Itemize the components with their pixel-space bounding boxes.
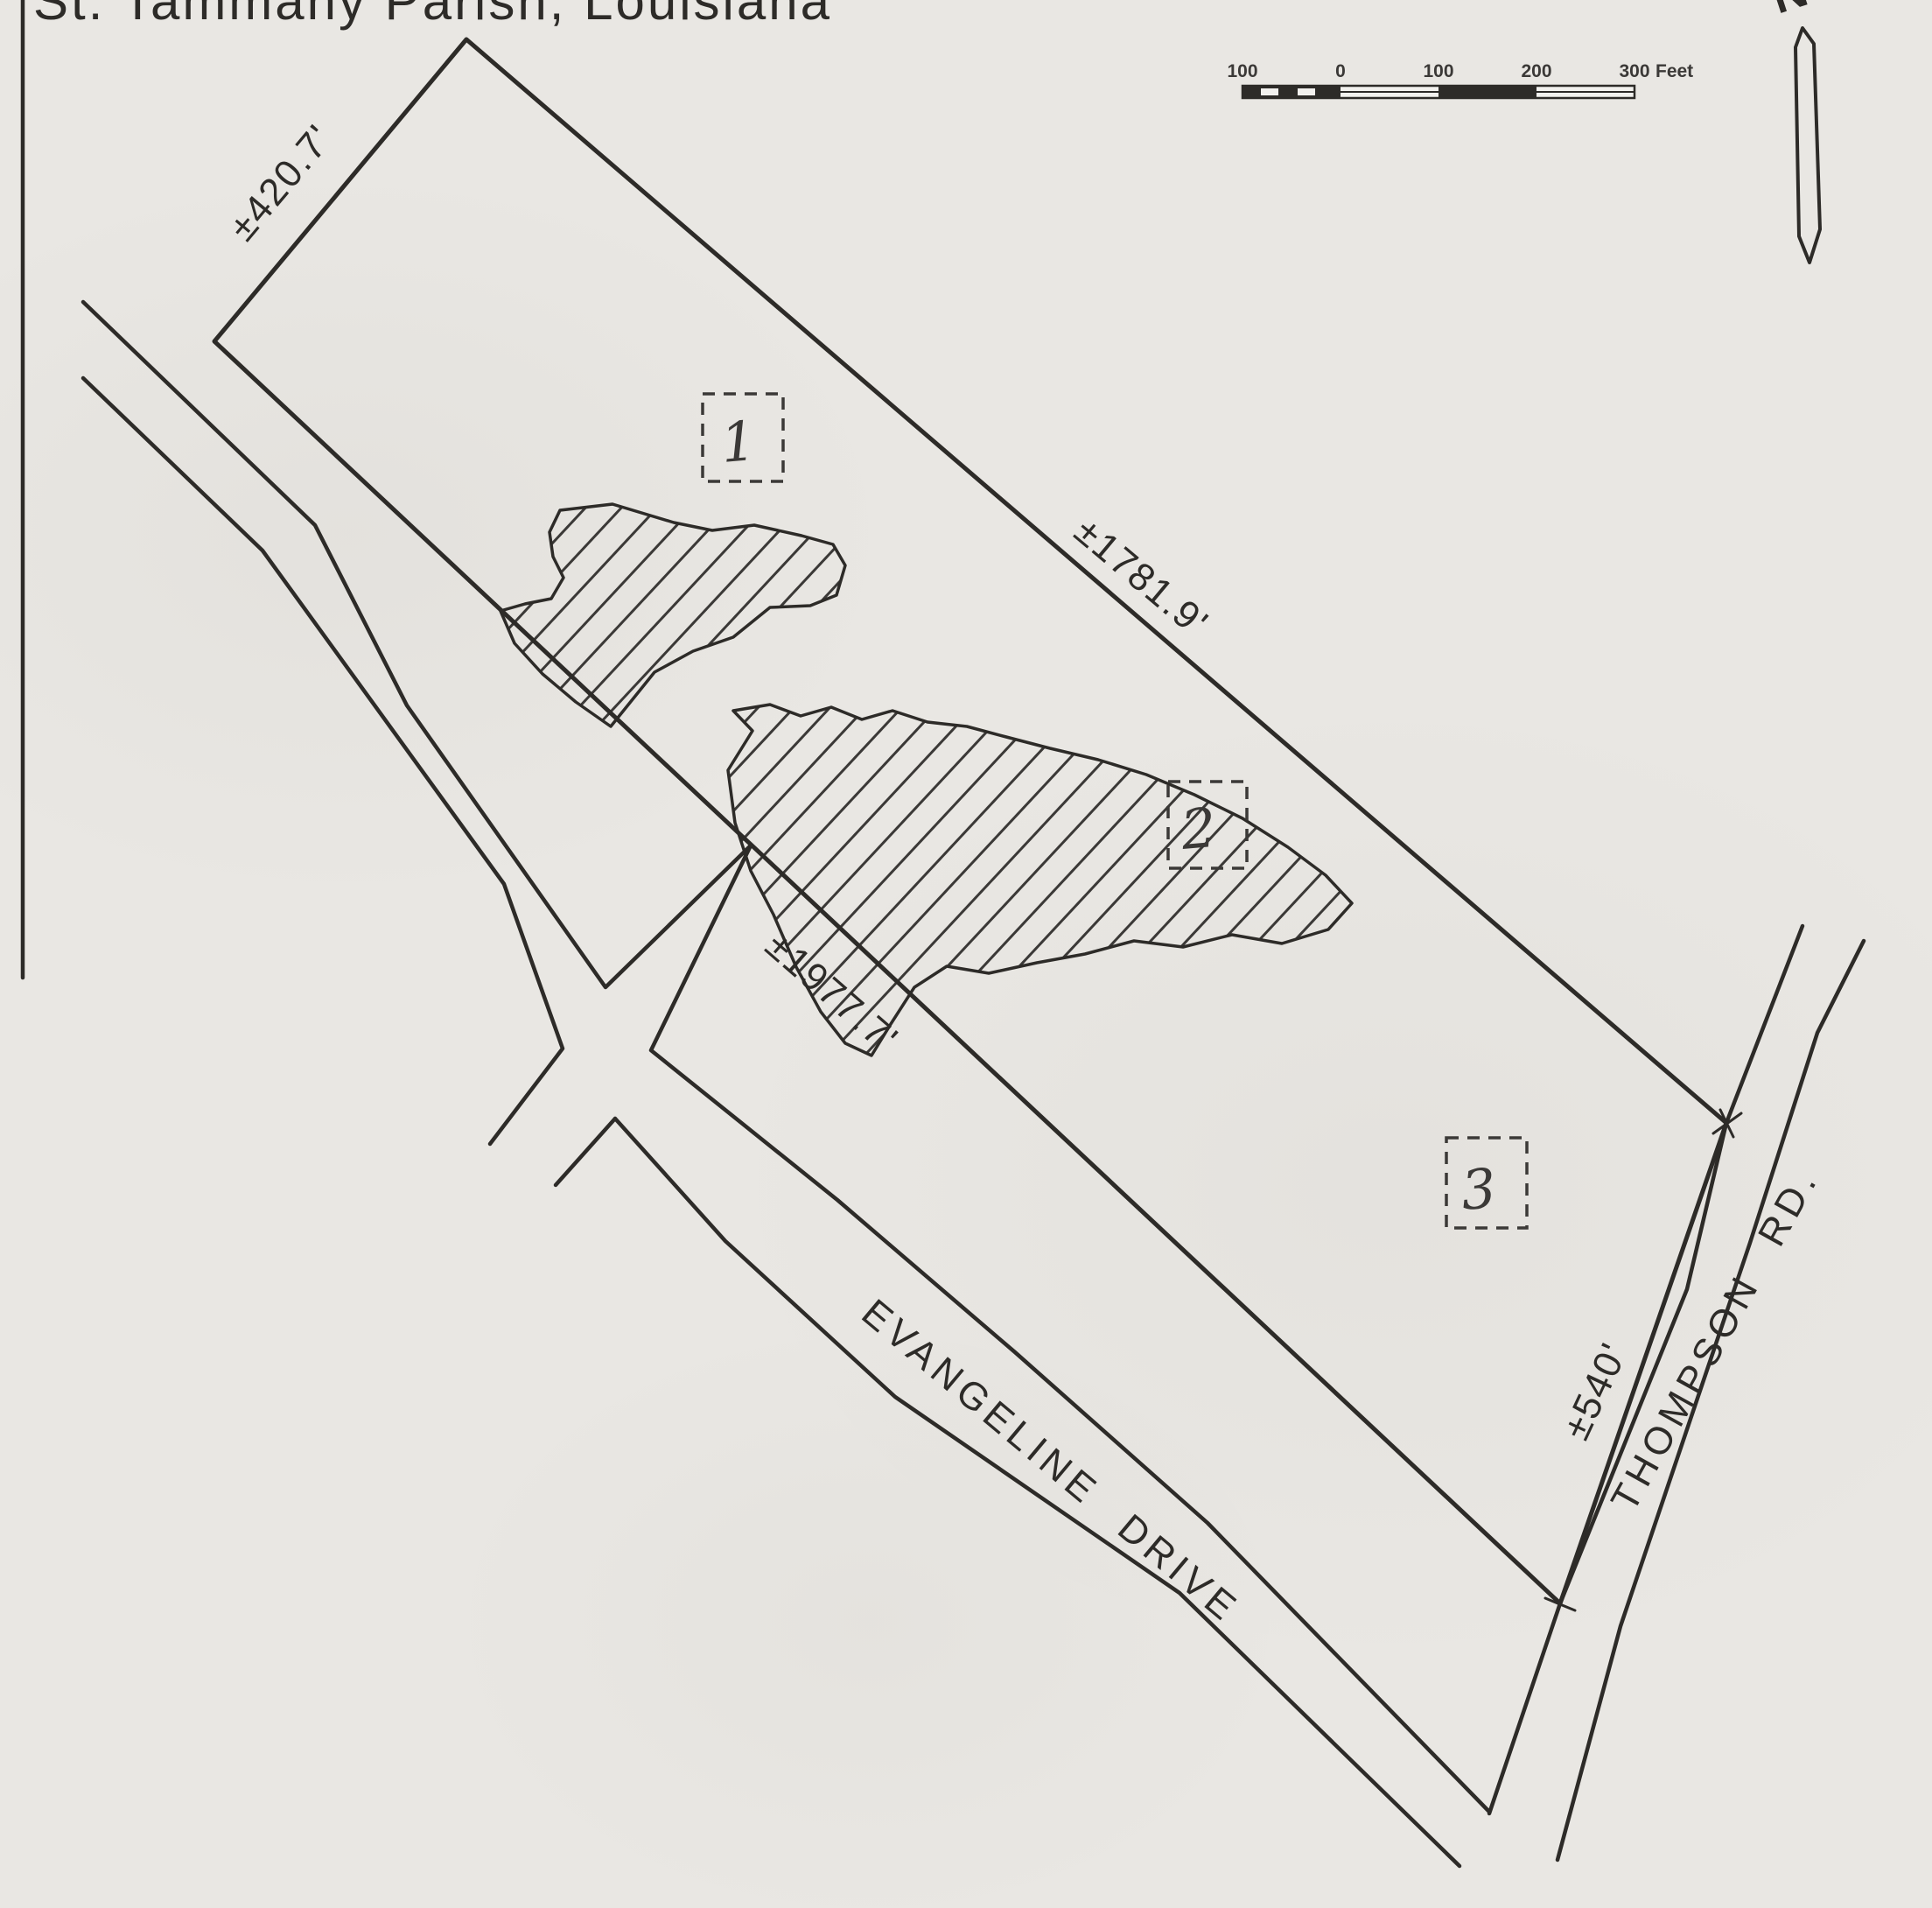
wetland-area-upper [500, 504, 845, 726]
evangeline-drive-label: EVANGELINE DRIVE [854, 1291, 1248, 1631]
scale-tick-300: 300 [1619, 61, 1649, 81]
scale-bar-notch-2 [1298, 88, 1315, 95]
scanned-survey-plat: { "page": { "title": "St. Tammany Parish… [0, 0, 1932, 1908]
scale-bar-segment-dark-2 [1438, 86, 1536, 98]
thompson-road-label: THOMPSON RD. [1603, 1161, 1827, 1519]
evangeline-drive-northeast-edge [651, 845, 1489, 1812]
side-road-west-edge [83, 378, 563, 1144]
scale-tick-100-right: 100 [1423, 61, 1453, 81]
area-3-number: 3 [1459, 1156, 1499, 1223]
area-2-number: 2 [1178, 796, 1219, 862]
scale-bar-notch-1 [1261, 88, 1278, 95]
north-arrow-letter: N [1765, 0, 1814, 24]
scale-tick-200: 200 [1521, 61, 1551, 81]
area-1-number: 1 [718, 409, 759, 475]
scale-bar: 100 0 100 200 300 Feet [1227, 61, 1693, 98]
scale-unit-label: Feet [1655, 61, 1693, 81]
scale-tick-100-left: 100 [1227, 61, 1257, 81]
dimension-nw-label: ±420.7' [220, 116, 341, 249]
scale-bar-segment-dark-1 [1242, 86, 1340, 98]
plat-drawing: 1 2 3 ±420.7' ±1781.9' ±1977.7' ±540' EV… [0, 0, 1932, 1908]
dimension-se-label: ±540' [1555, 1336, 1636, 1446]
north-arrow-needle-icon [1795, 28, 1820, 263]
north-arrow: N [1765, 0, 1820, 263]
evangeline-drive-southwest-edge [615, 1119, 1459, 1866]
thompson-road-west-edge [1489, 926, 1802, 1813]
scale-tick-0: 0 [1335, 61, 1346, 81]
side-road-south-stub [556, 1119, 615, 1185]
